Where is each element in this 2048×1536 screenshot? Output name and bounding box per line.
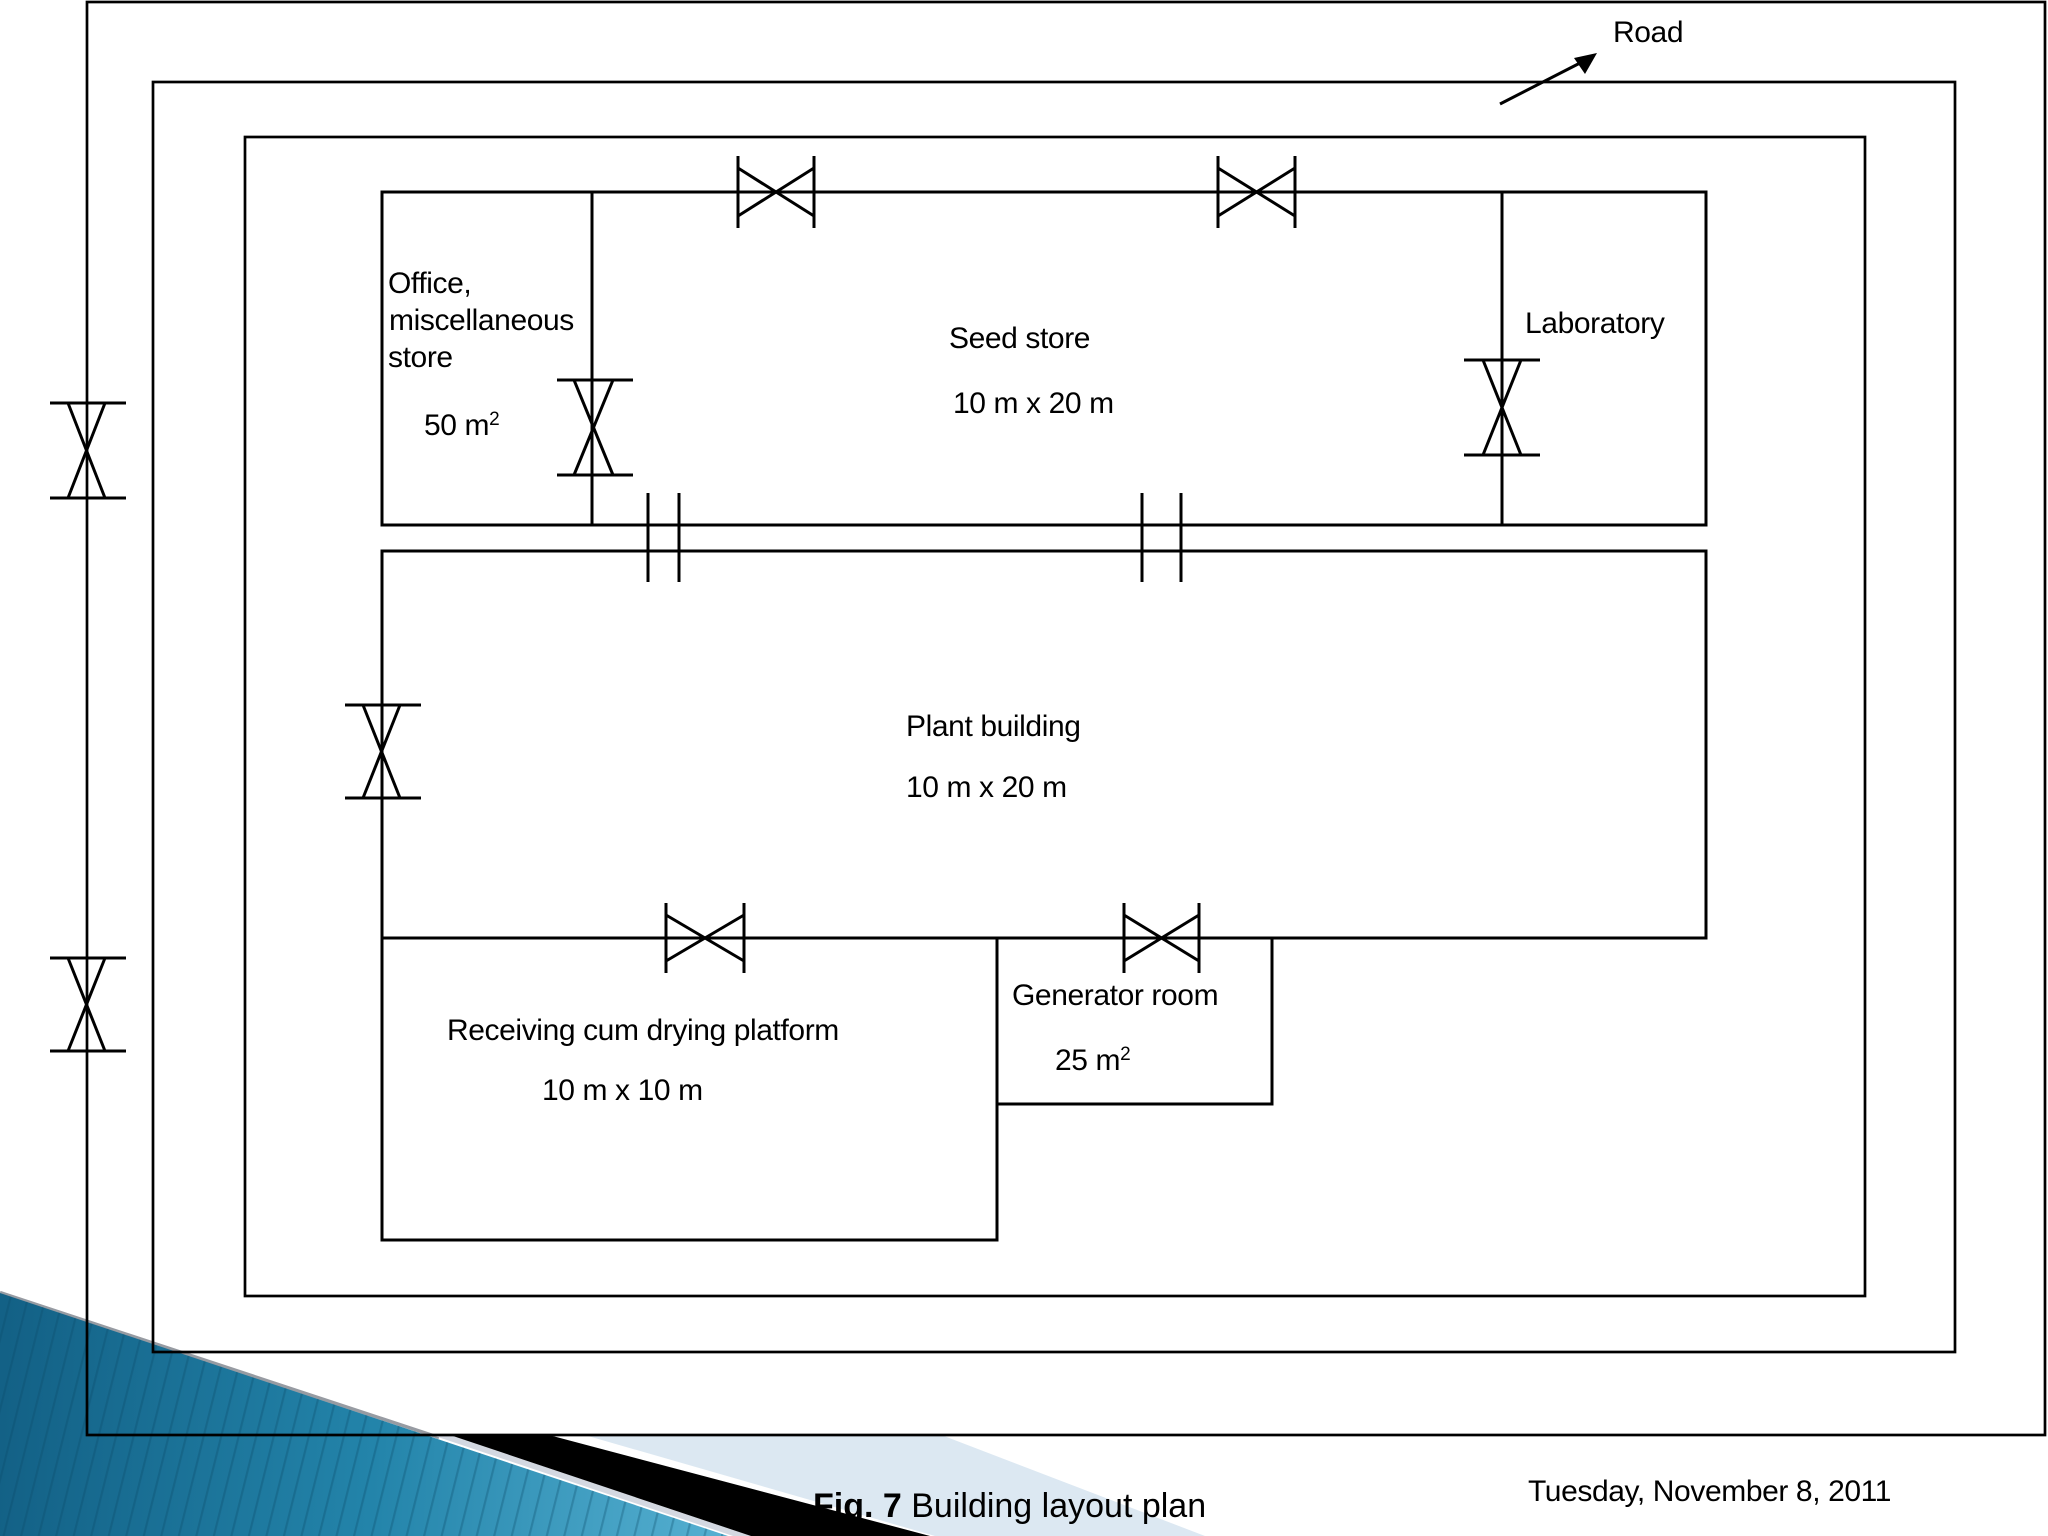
svg-text:Seed store: Seed store (949, 322, 1090, 355)
svg-text:Receiving cum drying platform: Receiving cum drying platform (447, 1014, 839, 1047)
svg-text:store: store (388, 341, 453, 374)
svg-text:miscellaneous: miscellaneous (389, 304, 574, 337)
svg-text:50 m2: 50 m2 (424, 409, 499, 442)
svg-text:10 m x 20 m: 10 m x 20 m (906, 771, 1067, 804)
svg-text:Tuesday, November 8, 2011: Tuesday, November 8, 2011 (1528, 1475, 1891, 1508)
svg-text:Office,: Office, (388, 267, 471, 300)
svg-text:Generator room: Generator room (1012, 979, 1218, 1012)
svg-text:Fig. 7 Building layout plan: Fig. 7 Building layout plan (813, 1487, 1206, 1525)
svg-text:10 m x 20 m: 10 m x 20 m (953, 387, 1114, 420)
svg-text:Plant building: Plant building (906, 710, 1081, 743)
svg-text:Laboratory: Laboratory (1525, 307, 1665, 340)
svg-text:Road: Road (1613, 16, 1683, 49)
svg-text:25 m2: 25 m2 (1055, 1044, 1130, 1077)
svg-text:10 m x 10 m: 10 m x 10 m (542, 1074, 703, 1107)
